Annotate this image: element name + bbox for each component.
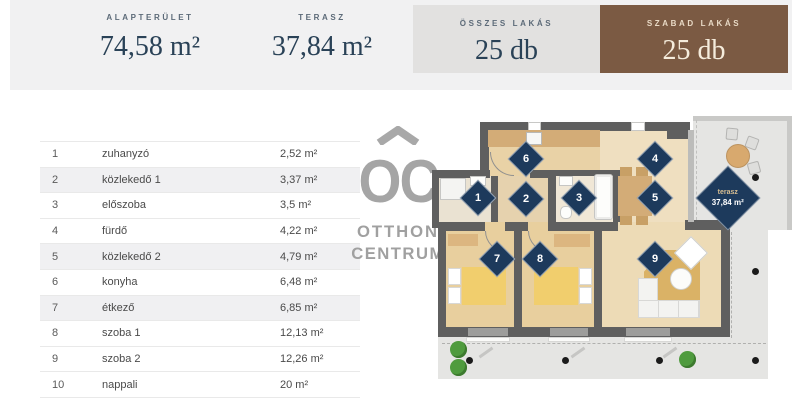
stat-free-flats[interactable]: SZABAD LAKÁS 25 db	[600, 5, 788, 73]
desk	[554, 234, 590, 247]
roof-icon	[375, 126, 421, 145]
table-row: 5közlekedő 24,79 m²	[40, 244, 360, 270]
wall	[505, 222, 528, 231]
window-sill	[466, 337, 510, 342]
column-dot	[752, 357, 759, 364]
column-dot	[752, 174, 759, 181]
room-marker-number: 7	[494, 253, 500, 265]
terrace-dashed-line	[696, 120, 697, 220]
room-marker-number: 6	[523, 153, 529, 165]
pillow	[448, 268, 461, 285]
terrace-dashed-line	[442, 343, 766, 344]
wall	[438, 222, 446, 335]
stat-label: SZABAD LAKÁS	[600, 19, 788, 28]
table-row: 1zuhanyzó2,52 m²	[40, 142, 360, 168]
bush	[679, 351, 696, 368]
table-cell-area: 12,13 m²	[280, 327, 360, 339]
window	[550, 328, 588, 336]
pillow	[579, 268, 592, 285]
coffee-table	[670, 268, 692, 290]
table-row: 8szoba 112,13 m²	[40, 321, 360, 347]
terrace-chair	[725, 127, 738, 140]
wall	[432, 170, 439, 228]
bush	[450, 359, 467, 376]
stat-label: TERASZ	[237, 13, 407, 22]
table-cell-name: fürdő	[102, 225, 280, 237]
column-dot	[752, 268, 759, 275]
window-sill	[548, 337, 590, 342]
table-row: 9szoba 212,26 m²	[40, 347, 360, 373]
table-cell-num: 4	[40, 225, 102, 237]
desk	[448, 234, 478, 246]
table-row: 10nappali20 m²	[40, 372, 360, 398]
table-cell-num: 9	[40, 353, 102, 365]
dining-chair	[620, 167, 632, 176]
table-cell-area: 6,85 m²	[280, 302, 360, 314]
table-cell-num: 1	[40, 148, 102, 160]
table-cell-num: 8	[40, 327, 102, 339]
terrace-label: terasz	[712, 189, 744, 198]
stats-header-band: ALAPTERÜLET 74,58 m² TERASZ 37,84 m² ÖSS…	[10, 0, 792, 90]
pillow	[448, 287, 461, 304]
stat-value: 25 db	[413, 35, 600, 67]
bathroom-sink	[559, 176, 573, 186]
column-dot	[562, 357, 569, 364]
column-dot	[656, 357, 663, 364]
room-marker-number: 9	[652, 253, 658, 265]
terrace-edge	[787, 116, 792, 230]
room-marker-number: 3	[576, 192, 582, 204]
stat-total-flats[interactable]: ÖSSZES LAKÁS 25 db	[413, 5, 600, 73]
wall	[548, 222, 618, 231]
kitchen-counter	[488, 130, 600, 147]
table-row: 7étkező6,85 m²	[40, 296, 360, 322]
table-cell-num: 3	[40, 199, 102, 211]
window	[468, 328, 508, 336]
pillow	[579, 287, 592, 304]
bush	[450, 341, 467, 358]
table-cell-num: 5	[40, 251, 102, 263]
table-cell-name: közlekedő 1	[102, 174, 280, 186]
table-cell-name: előszoba	[102, 199, 280, 211]
table-cell-area: 6,48 m²	[280, 276, 360, 288]
wall	[438, 222, 485, 231]
room-marker-number: 4	[652, 153, 658, 165]
window	[626, 328, 670, 336]
wall	[548, 170, 556, 222]
stat-terrace-area: TERASZ 37,84 m²	[237, 0, 407, 90]
table-cell-num: 10	[40, 379, 102, 391]
sofa	[638, 300, 700, 318]
table-row: 4fürdő4,22 m²	[40, 219, 360, 245]
table-cell-name: étkező	[102, 302, 280, 314]
table-cell-name: közlekedő 2	[102, 251, 280, 263]
room-list-table: 1zuhanyzó2,52 m²2közlekedő 13,37 m²3elős…	[40, 141, 360, 398]
table-cell-num: 2	[40, 174, 102, 186]
window	[631, 122, 645, 131]
table-row: 6konyha6,48 m²	[40, 270, 360, 296]
column-dot	[466, 357, 473, 364]
room-marker-number: 1	[475, 192, 481, 204]
dining-chair	[636, 216, 648, 225]
terrace-dashed-line	[731, 232, 732, 338]
table-row: 3előszoba3,5 m²	[40, 193, 360, 219]
table-cell-name: konyha	[102, 276, 280, 288]
table-cell-num: 7	[40, 302, 102, 314]
terrace-edge	[693, 116, 792, 121]
table-cell-name: zuhanyzó	[102, 148, 280, 160]
dining-chair	[620, 216, 632, 225]
stat-value: 25 db	[600, 35, 788, 67]
stat-label: ÖSSZES LAKÁS	[413, 19, 600, 28]
glass-wall	[688, 130, 694, 222]
wall	[514, 231, 522, 329]
stat-value: 37,84 m²	[237, 31, 407, 63]
terrace-value: 37,84 m²	[712, 197, 744, 207]
table-cell-area: 20 m²	[280, 379, 360, 391]
table-cell-name: szoba 1	[102, 327, 280, 339]
floorplan[interactable]: terasz 37,84 m² 123456789	[430, 110, 798, 380]
wall	[721, 220, 730, 332]
table-cell-name: nappali	[102, 379, 280, 391]
wall	[594, 231, 602, 329]
table-row: 2közlekedő 13,37 m²	[40, 168, 360, 194]
table-cell-name: szoba 2	[102, 353, 280, 365]
wall	[667, 129, 688, 139]
room-marker-number: 5	[652, 192, 658, 204]
room-marker-number: 2	[523, 193, 529, 205]
table-cell-area: 12,26 m²	[280, 353, 360, 365]
room-marker-number: 8	[537, 253, 543, 265]
window-sill	[624, 337, 672, 342]
table-cell-num: 6	[40, 276, 102, 288]
